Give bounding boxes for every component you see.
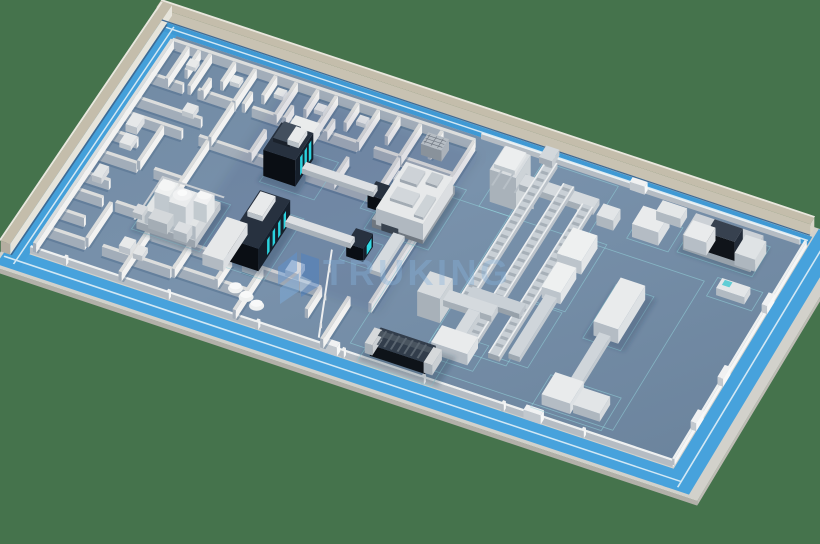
svg-text:TRUKING: TRUKING: [323, 252, 512, 293]
